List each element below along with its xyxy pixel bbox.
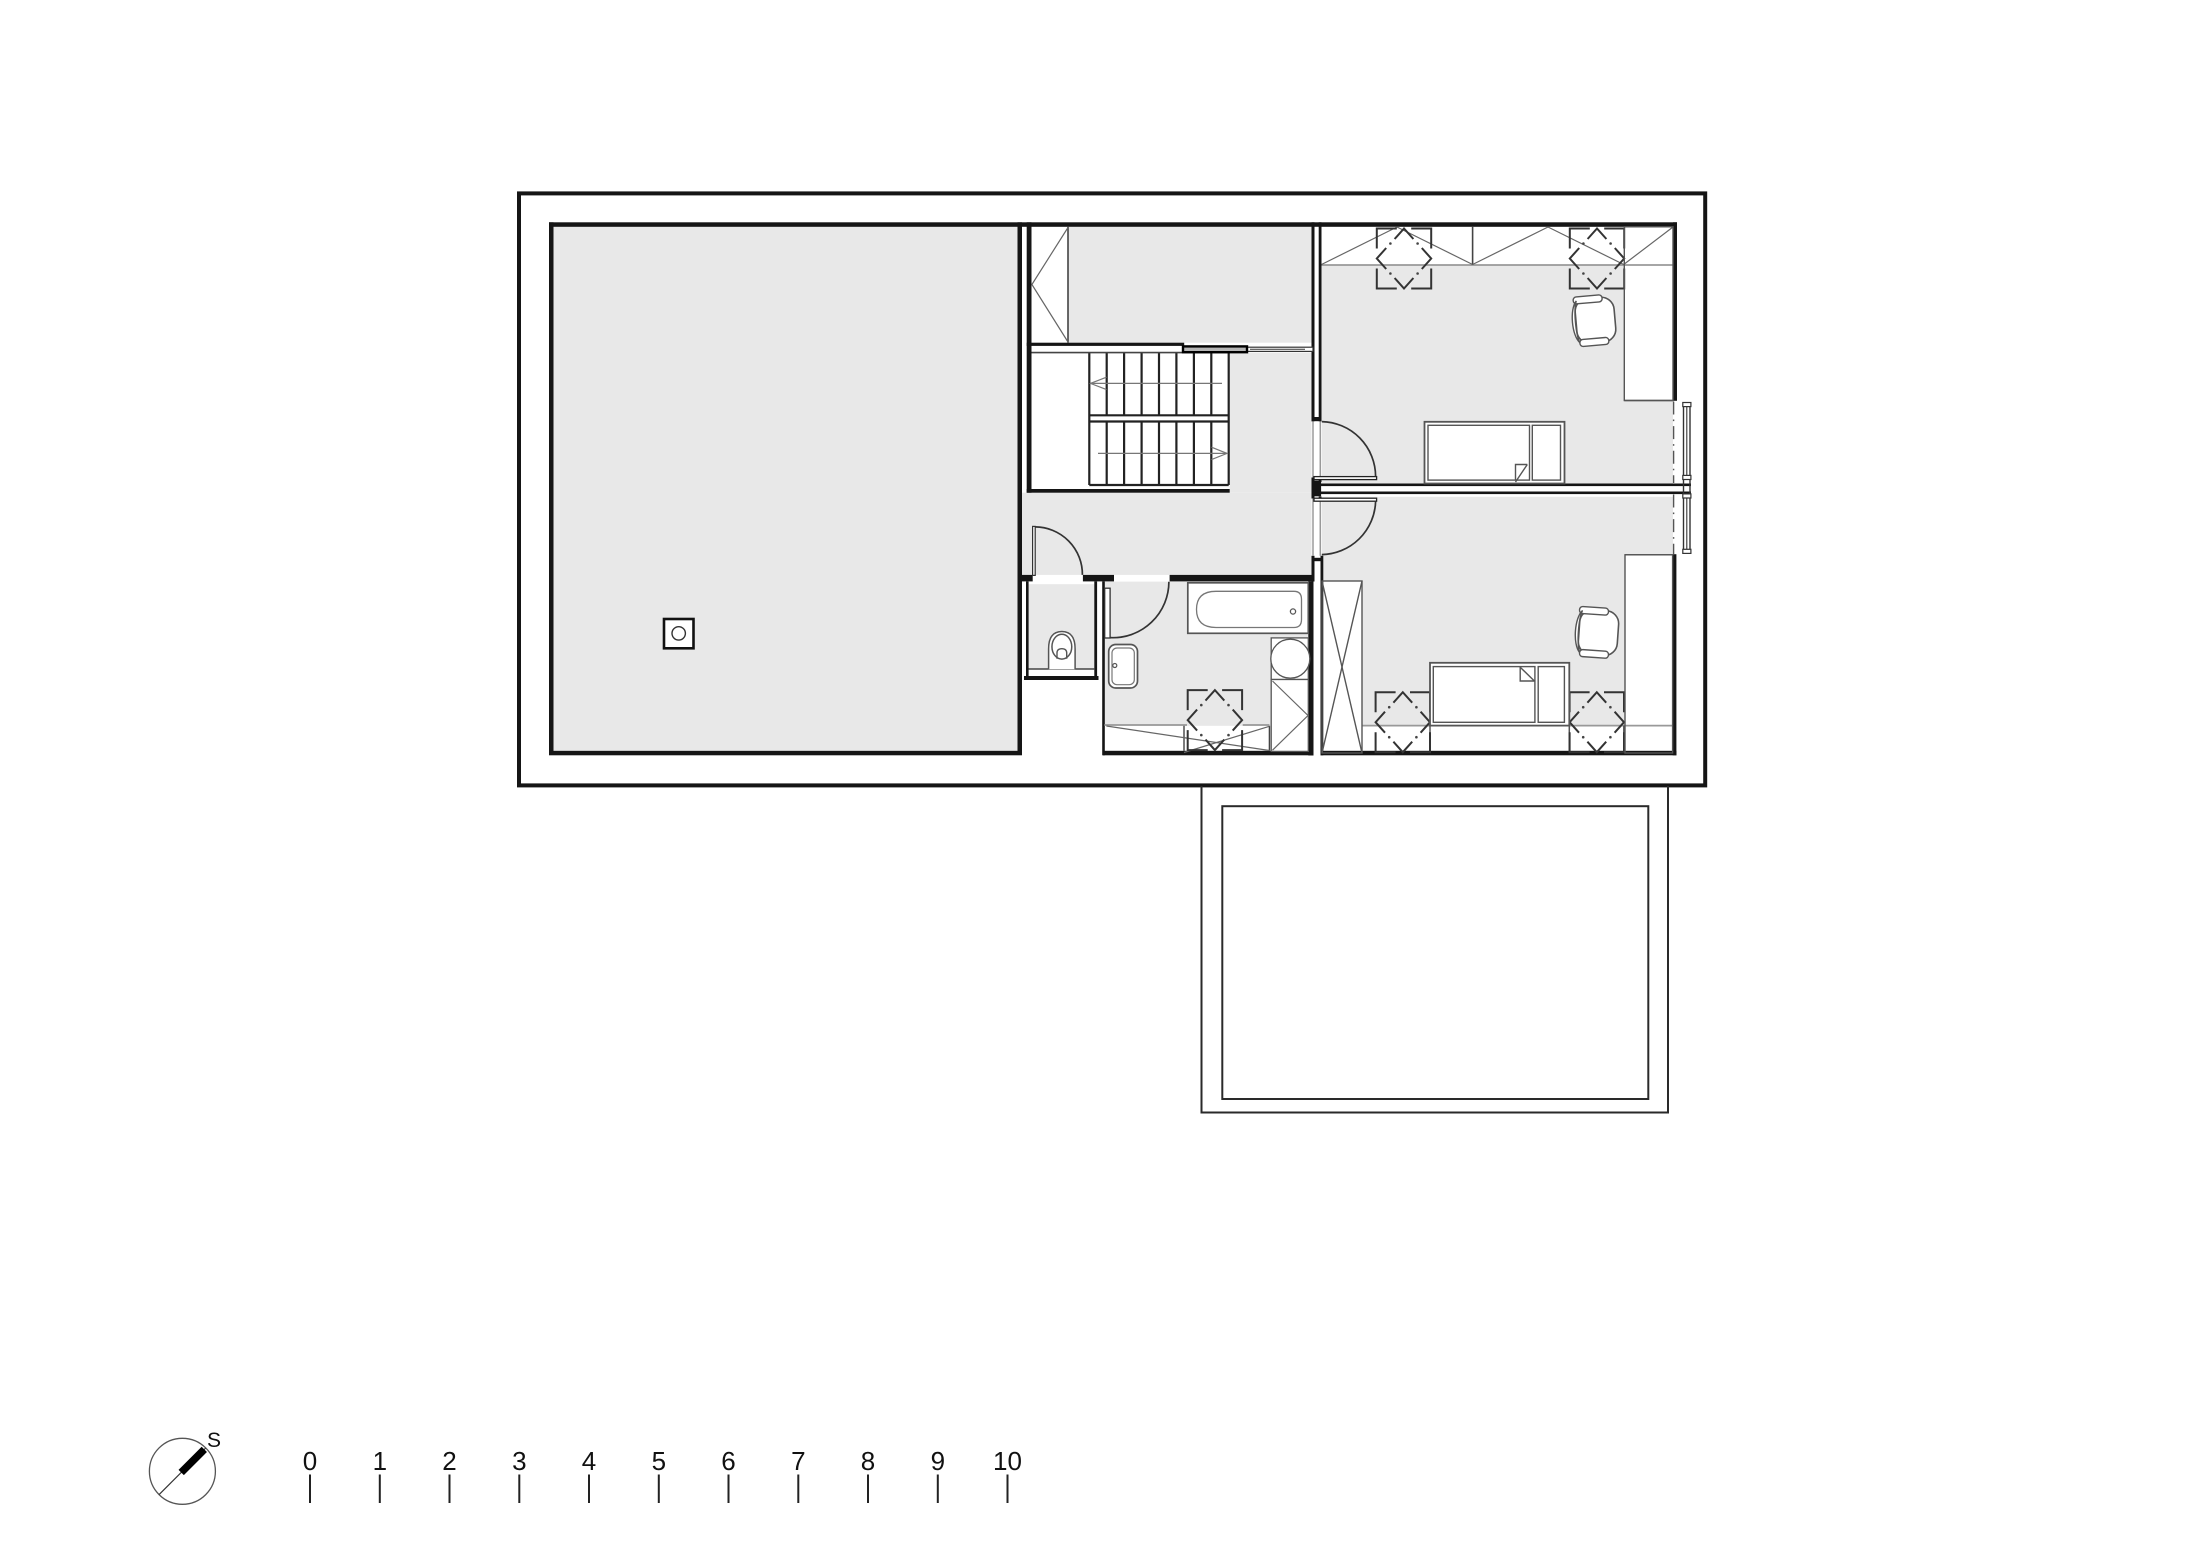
svg-text:5: 5 (652, 1446, 666, 1476)
svg-text:8: 8 (861, 1446, 875, 1476)
svg-text:0: 0 (303, 1446, 317, 1476)
svg-text:1: 1 (373, 1446, 387, 1476)
svg-text:2: 2 (442, 1446, 456, 1476)
svg-text:3: 3 (512, 1446, 526, 1476)
svg-text:10: 10 (993, 1446, 1022, 1476)
svg-text:9: 9 (931, 1446, 945, 1476)
svg-text:S: S (207, 1429, 221, 1452)
svg-text:7: 7 (791, 1446, 805, 1476)
svg-text:4: 4 (582, 1446, 596, 1476)
svg-text:6: 6 (721, 1446, 735, 1476)
